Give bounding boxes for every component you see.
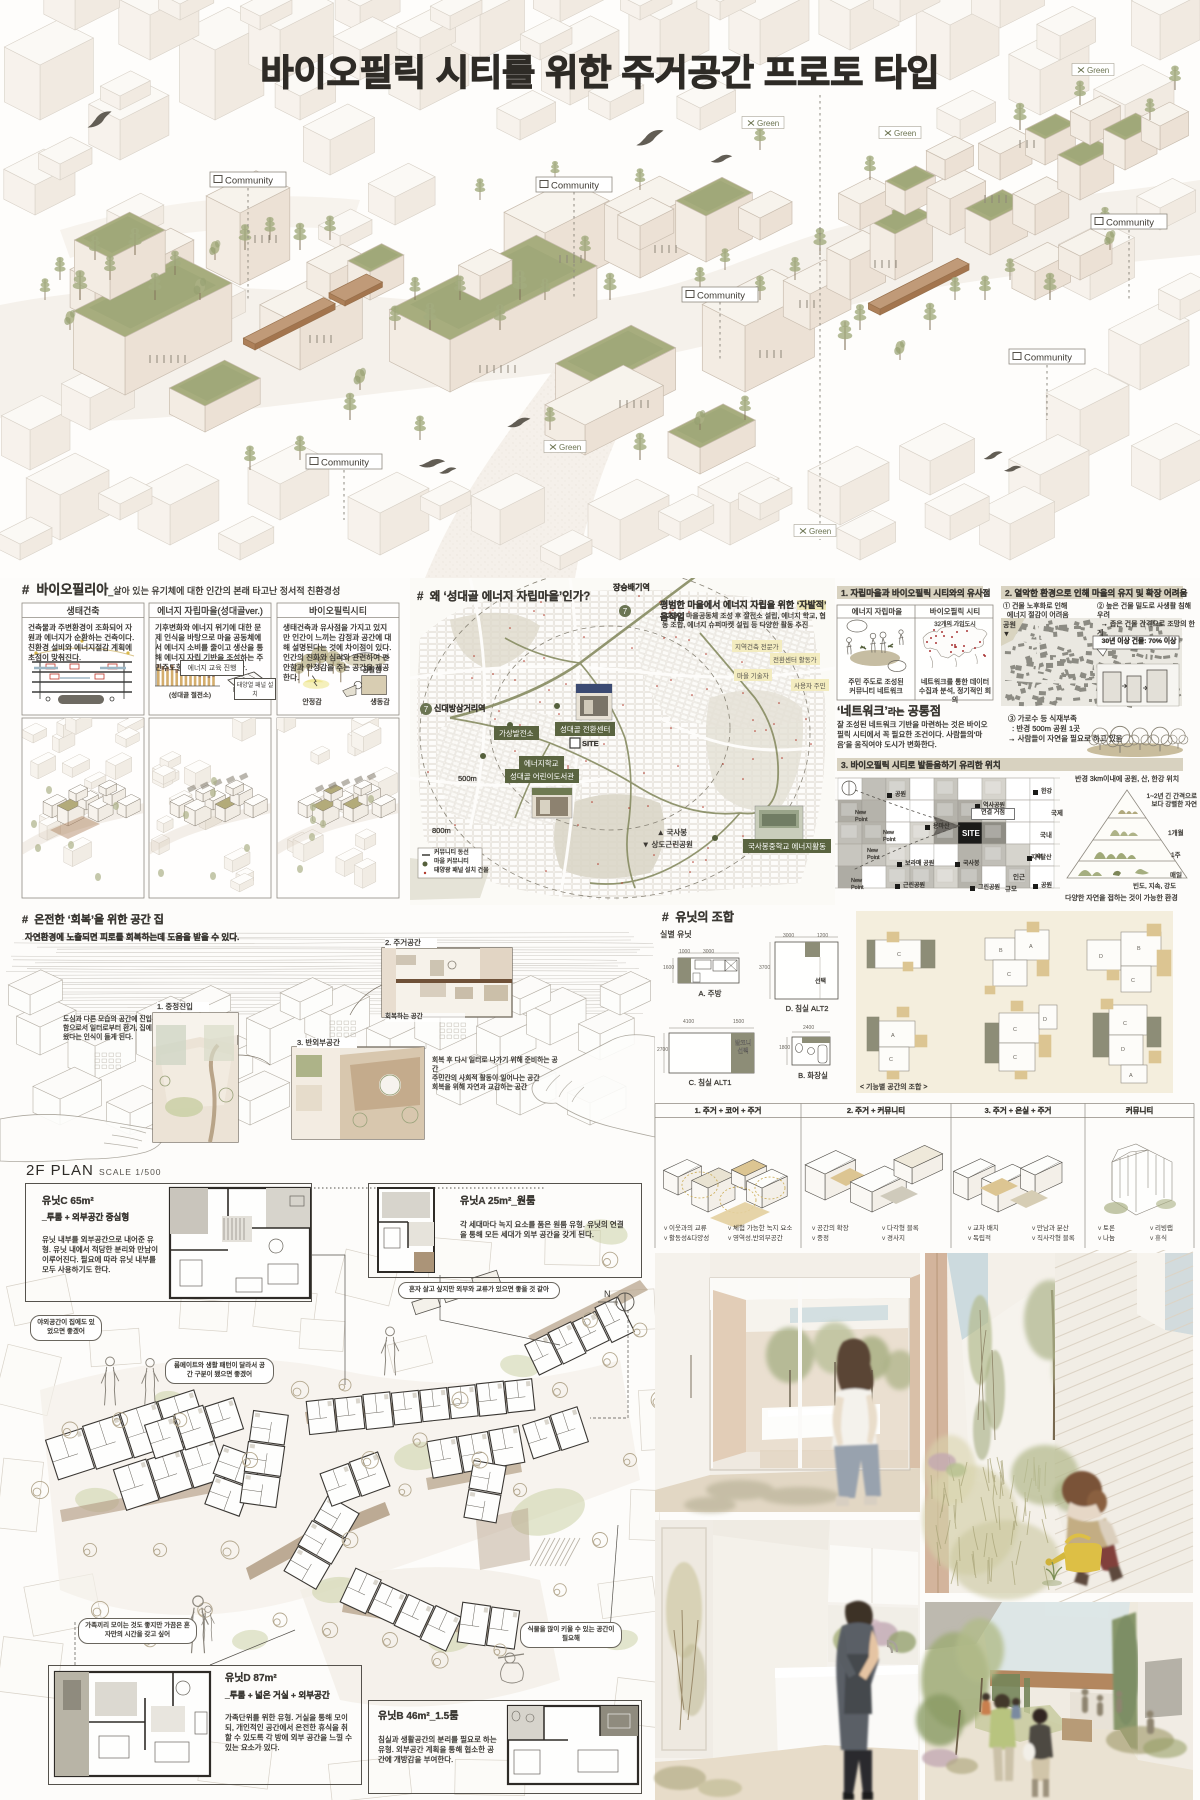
svg-text:C: C xyxy=(897,952,901,958)
svg-text:Green: Green xyxy=(894,129,916,138)
svg-text:B: B xyxy=(999,948,1003,954)
svg-text:C: C xyxy=(889,1057,893,1063)
svg-text:A: A xyxy=(891,1033,895,1039)
svg-text:Green: Green xyxy=(809,527,831,536)
svg-text:Community: Community xyxy=(1024,353,1072,364)
svg-text:7: 7 xyxy=(623,607,628,616)
svg-text:D: D xyxy=(1121,1047,1125,1053)
svg-text:A: A xyxy=(1029,944,1033,950)
svg-text:C: C xyxy=(1007,972,1011,978)
svg-text:C: C xyxy=(1013,1027,1017,1033)
svg-text:D: D xyxy=(1043,1017,1047,1023)
svg-text:Community: Community xyxy=(551,181,599,192)
svg-text:Green: Green xyxy=(757,119,779,128)
svg-text:Green: Green xyxy=(559,443,581,452)
svg-text:7: 7 xyxy=(424,705,429,714)
svg-text:A: A xyxy=(1129,1073,1133,1079)
svg-text:C: C xyxy=(1123,1021,1127,1027)
svg-text:B: B xyxy=(1137,946,1141,952)
svg-text:Community: Community xyxy=(1106,218,1154,229)
svg-text:C: C xyxy=(1131,978,1135,984)
svg-text:D: D xyxy=(1099,954,1103,960)
svg-text:Community: Community xyxy=(225,176,273,187)
svg-text:Community: Community xyxy=(697,291,745,302)
svg-text:N: N xyxy=(604,1289,611,1299)
svg-text:C: C xyxy=(1013,1055,1017,1061)
svg-text:Community: Community xyxy=(321,458,369,469)
